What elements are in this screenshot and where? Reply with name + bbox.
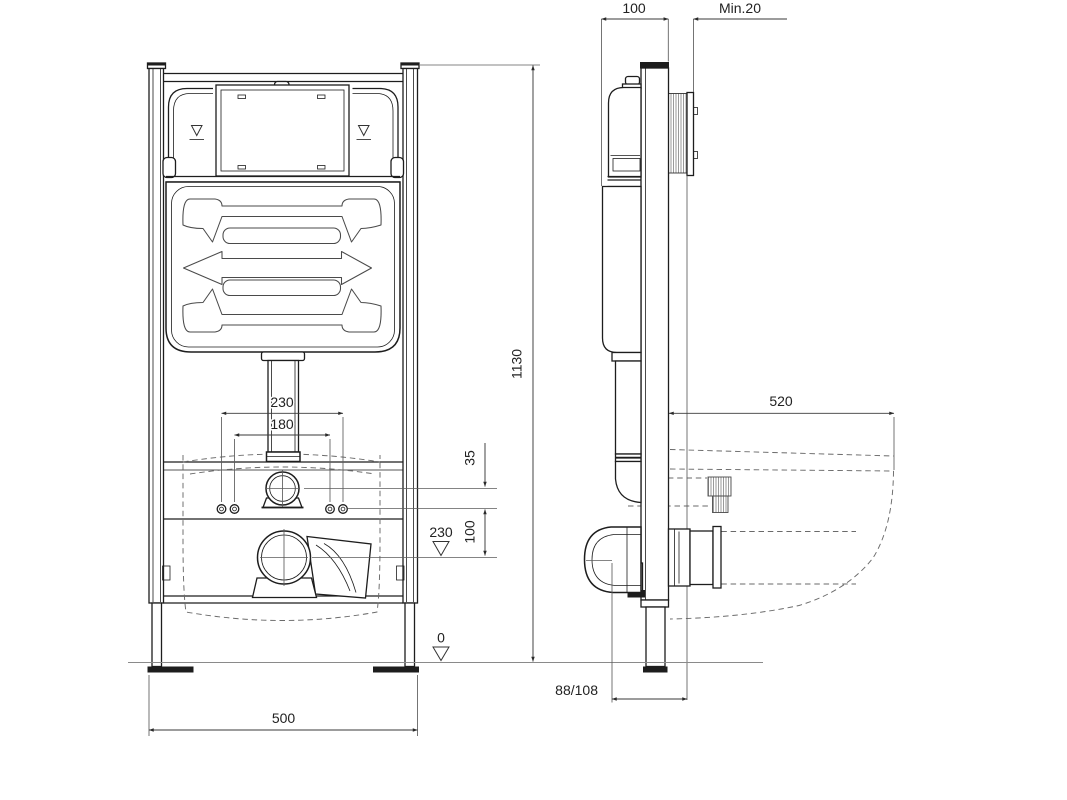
flush-housing-side <box>616 361 642 454</box>
level-label-230: 230 <box>429 524 453 540</box>
dim-overall-height: 1130 <box>509 66 534 662</box>
dim-wall-thickness: Min.20 <box>694 0 788 19</box>
dim-label-520: 520 <box>769 393 793 409</box>
cistern-surround <box>163 85 404 182</box>
water-level-icon <box>357 126 372 140</box>
dim-frame-width: 500 <box>149 710 418 730</box>
dim-outlet-offset: 88/108 <box>555 682 687 699</box>
dim-bowl-projection: 520 <box>669 393 894 413</box>
technical-drawing-page: 1130 500 230 180 35 100 230 <box>0 0 1067 800</box>
flush-bend-side <box>585 527 646 598</box>
rail-cap-right-top <box>401 63 419 66</box>
foot-left <box>148 667 194 673</box>
rail-cap-left-top <box>148 63 166 66</box>
wc-frame-installation-diagram: 1130 500 230 180 35 100 230 <box>0 0 1067 800</box>
level-mark-floor: 0 <box>433 630 449 661</box>
cistern-profile-side <box>603 77 642 503</box>
dim-label-180: 180 <box>270 416 294 432</box>
leg-left <box>152 603 162 667</box>
foot-side <box>643 667 668 673</box>
leg-side <box>646 607 665 667</box>
level-label-0: 0 <box>437 630 445 646</box>
frame-clip-right <box>391 158 404 178</box>
flush-plate-edge <box>687 93 698 176</box>
drain-hidden-lines <box>712 532 856 585</box>
leg-right <box>405 603 415 667</box>
dim-label-100-side: 100 <box>622 0 646 16</box>
level-triangle-icon <box>433 647 449 661</box>
foot-right <box>373 667 419 673</box>
fill-valve-cap <box>626 77 640 85</box>
drain-assembly <box>253 529 372 598</box>
access-window <box>216 85 349 176</box>
frame-clip-left <box>163 158 176 178</box>
frame-profile-side <box>640 62 669 673</box>
surround-divider <box>166 177 400 183</box>
water-level-icon <box>190 126 205 140</box>
cistern-body <box>166 182 400 352</box>
frame-rail-left <box>149 69 164 604</box>
dim-label-88-108: 88/108 <box>555 682 598 698</box>
dim-label-230: 230 <box>270 394 294 410</box>
front-view <box>148 63 420 673</box>
dim-label-1130: 1130 <box>509 349 525 379</box>
frame-top-cap-side <box>640 62 669 69</box>
dimensions-side: 100 Min.20 520 88/108 <box>555 0 894 703</box>
supply-assembly <box>262 471 304 508</box>
cistern-lower-band <box>612 353 641 362</box>
drain-connector-side <box>669 527 722 589</box>
dim-label-500: 500 <box>272 710 296 726</box>
side-view <box>585 62 894 700</box>
dim-frame-depth: 100 <box>602 0 669 19</box>
dim-supply-spacing: 100 <box>462 510 486 556</box>
frame-rail-right <box>403 69 418 604</box>
dim-label-35: 35 <box>462 450 478 466</box>
level-mark-drain: 230 <box>429 524 453 556</box>
dim-label-100-front: 100 <box>462 520 478 544</box>
wall-section-hatch <box>669 94 688 174</box>
dim-supply-offset: 35 <box>462 443 486 487</box>
level-triangle-icon <box>433 542 449 556</box>
dim-label-min20: Min.20 <box>719 0 761 16</box>
supply-stub-side <box>708 477 731 513</box>
top-crossbar <box>164 74 404 82</box>
